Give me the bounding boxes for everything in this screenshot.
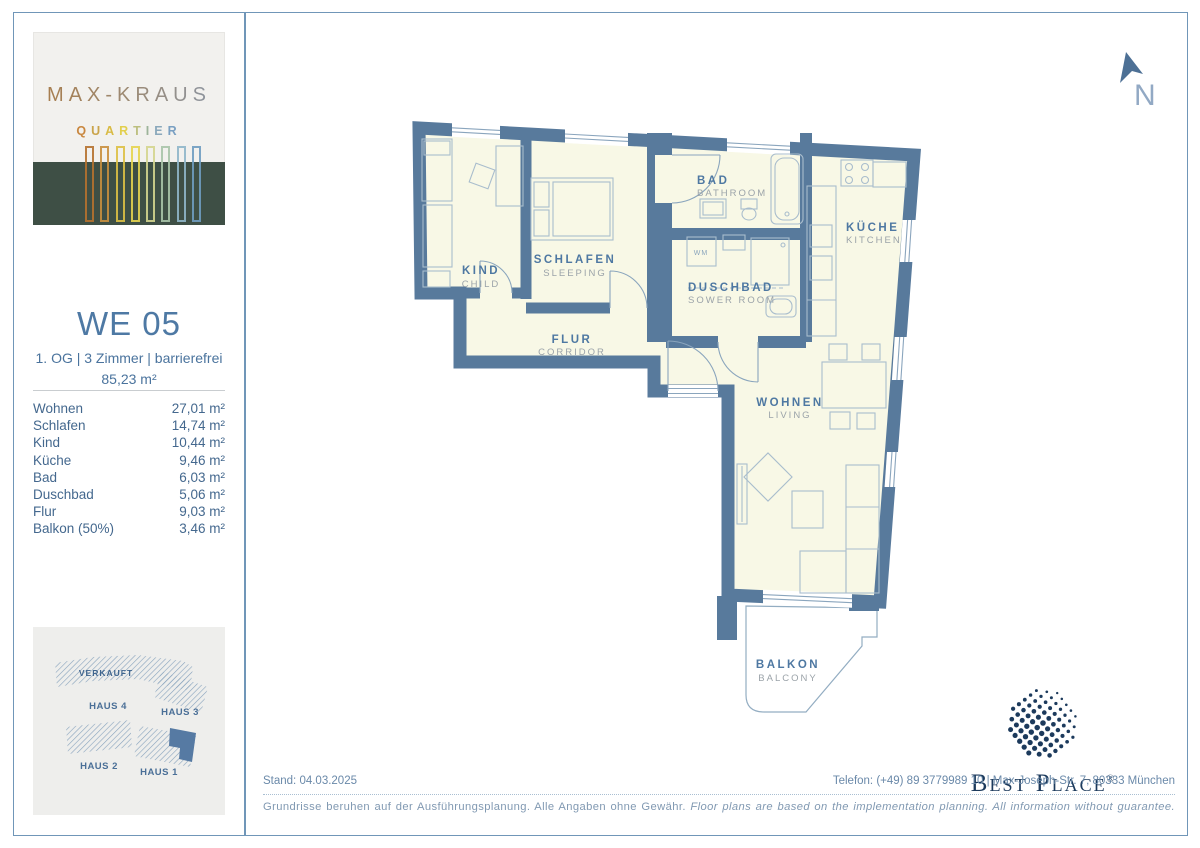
svg-text:KITCHEN: KITCHEN	[846, 235, 902, 246]
site-haus3-label: HAUS 3	[161, 707, 199, 718]
broker-contact: Telefon: (+49) 89 3779989 10 | Max-Josep…	[833, 775, 1175, 787]
window-living-upper	[892, 337, 909, 380]
logo-color-bar	[100, 146, 109, 222]
label-bad: BAD	[697, 175, 729, 187]
logo-color-bar	[161, 146, 170, 222]
svg-text:CHILD: CHILD	[462, 279, 501, 290]
room-area-value: 14,74 m²	[172, 417, 225, 434]
logo-color-bar	[131, 146, 140, 222]
room-area-row: Schlafen14,74 m²	[33, 417, 225, 434]
svg-text:BATHROOM: BATHROOM	[697, 188, 767, 199]
plan-date: Stand: 04.03.2025	[263, 775, 357, 787]
room-area-value: 9,03 m²	[179, 503, 225, 520]
svg-text:SOWER ROOM: SOWER ROOM	[688, 295, 776, 306]
disclaimer-english: Floor plans are based on the implementat…	[690, 801, 1175, 813]
window-living-lower	[885, 452, 901, 487]
project-logo: MAX-KRAUS QUARTIER	[33, 32, 225, 225]
site-plan-map: VERKAUFT HAUS 4 HAUS 3 HAUS 2 HAUS 1	[33, 627, 225, 815]
room-label: Bad	[33, 469, 57, 486]
room-area-value: 27,01 m²	[172, 400, 225, 417]
sidebar-divider-line	[33, 390, 225, 391]
room-area-row: Küche9,46 m²	[33, 452, 225, 469]
room-label: Flur	[33, 503, 56, 520]
room-area-value: 10,44 m²	[172, 434, 225, 451]
unit-title: WE 05	[33, 305, 225, 343]
unit-total-area: 85,23 m²	[33, 371, 225, 387]
project-logo-subtitle: QUARTIER	[33, 124, 225, 138]
footer-dotted-rule	[263, 794, 1175, 795]
svg-text:LIVING: LIVING	[768, 410, 811, 421]
svg-text:SLEEPING: SLEEPING	[543, 268, 607, 279]
room-area-row: Kind10,44 m²	[33, 434, 225, 451]
dotted-globe-icon	[995, 683, 1091, 765]
site-haus2-label: HAUS 2	[80, 761, 118, 772]
wall-stub-right	[849, 599, 879, 611]
site-haus2-shape	[66, 720, 132, 754]
label-kind: KIND	[462, 265, 500, 277]
logo-color-bar	[146, 146, 155, 222]
label-schlafen: SCHLAFEN	[534, 254, 617, 266]
room-area-value: 3,46 m²	[179, 520, 225, 537]
sidebar-main-divider	[244, 12, 246, 836]
room-label: Küche	[33, 452, 71, 469]
label-balkon: BALKON	[756, 659, 820, 671]
logo-color-bar	[177, 146, 186, 222]
room-label: Kind	[33, 434, 60, 451]
room-label: Balkon (50%)	[33, 520, 114, 537]
unit-summary: WE 05 1. OG | 3 Zimmer | barrierefrei 85…	[33, 305, 225, 387]
label-wohnen: WOHNEN	[756, 397, 823, 409]
disclaimer-german: Grundrisse beruhen auf der Ausführungspl…	[263, 801, 686, 813]
logo-color-bar	[116, 146, 125, 222]
floor-plan: KIND CHILD SCHLAFEN SLEEPING BAD BATHROO…	[405, 98, 950, 763]
window-kind	[452, 123, 500, 140]
svg-text:BALCONY: BALCONY	[758, 673, 817, 684]
room-area-value: 6,03 m²	[179, 469, 225, 486]
room-area-table: Wohnen27,01 m²Schlafen14,74 m²Kind10,44 …	[33, 400, 225, 538]
room-label: Wohnen	[33, 400, 83, 417]
window-kueche	[900, 220, 917, 262]
svg-text:CORRIDOR: CORRIDOR	[538, 347, 606, 358]
logo-color-bar	[85, 146, 94, 222]
room-area-row: Balkon (50%)3,46 m²	[33, 520, 225, 537]
label-kueche: KÜCHE	[846, 221, 899, 234]
room-area-row: Flur9,03 m²	[33, 503, 225, 520]
label-duschbad: DUSCHBAD	[688, 282, 774, 294]
north-letter: N	[1134, 79, 1156, 112]
expose-page: MAX-KRAUS QUARTIER WE 05 1. OG | 3 Zimme…	[0, 0, 1200, 848]
label-flur: FLUR	[552, 334, 593, 346]
unit-subtitle: 1. OG | 3 Zimmer | barrierefrei	[33, 350, 225, 366]
site-sold-label: VERKAUFT	[79, 668, 133, 678]
room-area-row: Bad6,03 m²	[33, 469, 225, 486]
site-haus4-label: HAUS 4	[89, 701, 127, 712]
logo-color-bars	[85, 146, 201, 218]
room-area-value: 9,46 m²	[179, 452, 225, 469]
room-area-row: Duschbad5,06 m²	[33, 486, 225, 503]
room-area-value: 5,06 m²	[179, 486, 225, 503]
room-area-row: Wohnen27,01 m²	[33, 400, 225, 417]
room-label: Duschbad	[33, 486, 94, 503]
north-indicator: N	[1108, 45, 1178, 115]
room-label: Schlafen	[33, 417, 86, 434]
wall-stub-left	[717, 596, 737, 640]
project-logo-title: MAX-KRAUS	[33, 84, 225, 107]
logo-color-bar	[192, 146, 201, 222]
disclaimer: Grundrisse beruhen auf der Ausführungspl…	[263, 801, 1175, 813]
site-haus1-label: HAUS 1	[140, 767, 178, 778]
label-wm: WM	[694, 250, 708, 257]
